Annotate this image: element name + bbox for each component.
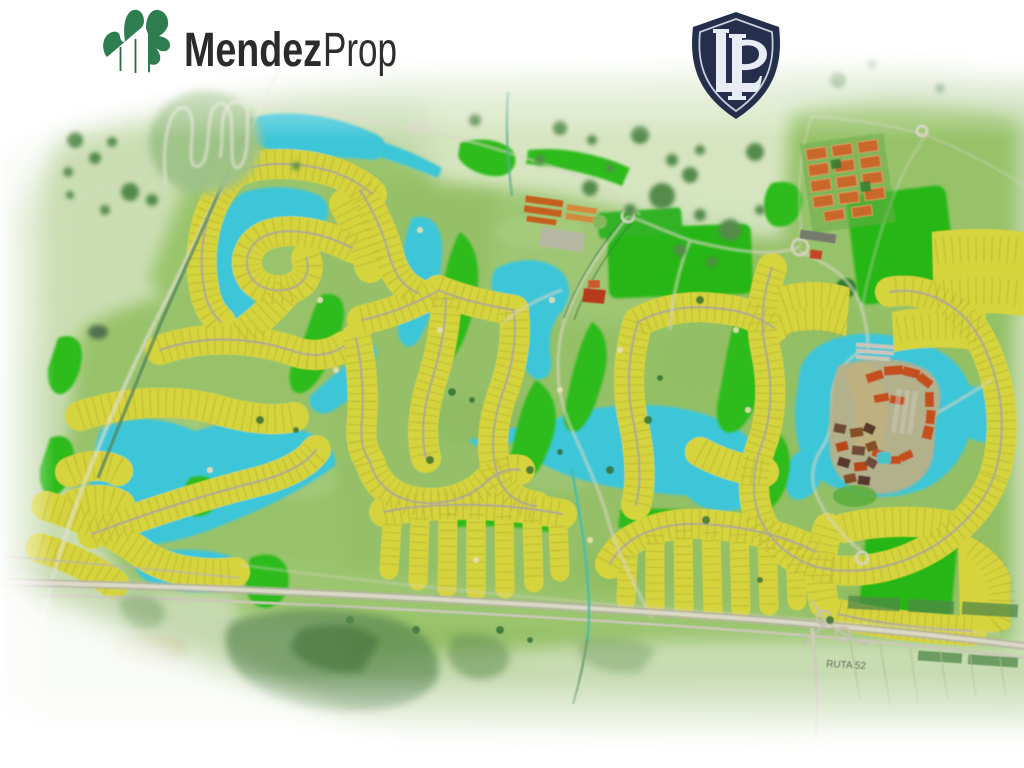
svg-text:Prop: Prop <box>323 24 397 77</box>
svg-text:Mendez: Mendez <box>184 24 322 77</box>
svg-text:RUTA 52: RUTA 52 <box>826 659 867 672</box>
